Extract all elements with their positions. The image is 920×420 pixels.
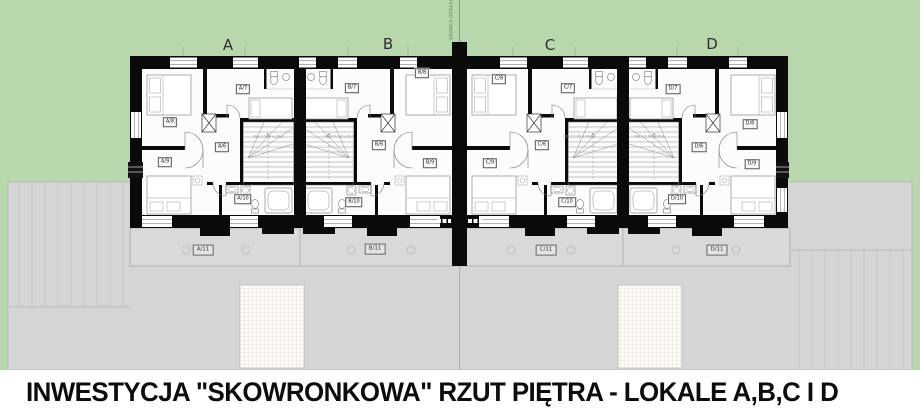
- room-label-b9: B/9: [423, 158, 437, 168]
- driveway-hatch-left: [9, 182, 130, 307]
- room-label-c6: C/6: [535, 140, 549, 150]
- floor-plan-drawing: GRANICA DZIAŁKI A B C D A/6 A/7 A/8 A/9 …: [0, 0, 920, 420]
- room-label-a6: A/6: [215, 142, 229, 152]
- room-label-c10: C/10: [558, 197, 576, 207]
- room-label-c9: C/9: [483, 158, 497, 168]
- room-label-b10: B/10: [345, 197, 362, 207]
- room-label-d10: D/10: [668, 194, 686, 204]
- driveway-hatch-right: [790, 250, 912, 370]
- room-label-d6: D/6: [692, 142, 707, 152]
- stair-dimension-a: 16x 17,78 x 26,9: [253, 135, 284, 139]
- room-label-a10: A/10: [234, 194, 251, 204]
- room-label-a8: A/8: [163, 117, 177, 127]
- room-label-d7: D/7: [666, 84, 681, 94]
- room-label-d8: D/8: [743, 119, 758, 129]
- terrace-label-a11: A/11: [193, 245, 214, 256]
- terrace-label-c11: C/11: [536, 245, 557, 256]
- room-label-c8: C/8: [492, 74, 506, 84]
- unit-letter-d: D: [706, 35, 718, 53]
- room-label-a9: A/9: [158, 157, 172, 167]
- terrace-label-b11: B/11: [365, 244, 386, 255]
- unit-letter-a: A: [223, 36, 233, 54]
- stair-dimension-d: 16x 17,78 x 26,9: [634, 135, 665, 139]
- stair-dimension-c: 16x 17,78 x 26,9: [563, 135, 594, 139]
- room-label-c7: C/7: [561, 83, 575, 93]
- room-label-d9: D/9: [745, 159, 760, 169]
- room-label-b8: B/8: [415, 68, 429, 78]
- page-title: INWESTYCJA "SKOWRONKOWA" RZUT PIĘTRA - L…: [26, 377, 838, 408]
- unit-letter-c: C: [545, 36, 555, 54]
- expansion-joint-wall: [452, 42, 467, 266]
- room-label-a7: A/7: [236, 84, 250, 94]
- terrace-label-d11: D/11: [706, 245, 727, 256]
- room-label-b6: B/6: [372, 140, 386, 150]
- plot-boundary-label: GRANICA DZIAŁKI: [450, 0, 455, 40]
- stair-dimension-b: 16x 17,78 x 26,9: [324, 135, 355, 139]
- title-bar: INWESTYCJA "SKOWRONKOWA" RZUT PIĘTRA - L…: [0, 370, 920, 420]
- site-plan-svg: [0, 0, 920, 420]
- room-label-b7: B/7: [345, 83, 359, 93]
- unit-letter-b: B: [383, 35, 393, 53]
